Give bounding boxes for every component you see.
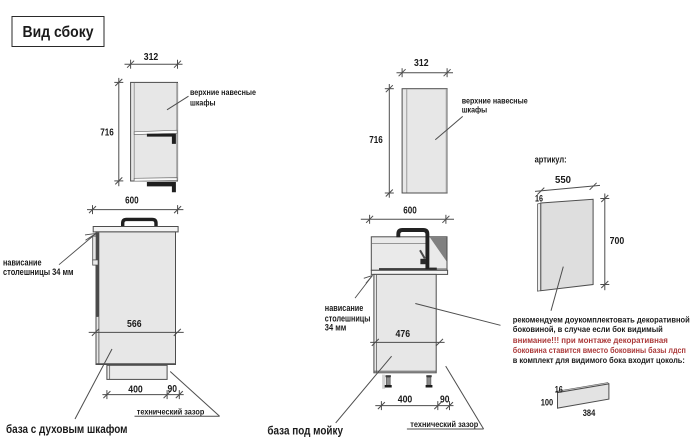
svg-text:16: 16 [555,385,563,395]
svg-text:400: 400 [128,384,143,395]
svg-text:312: 312 [414,58,429,69]
svg-text:боковина ставится вместо боков: боковина ставится вместо боковины базы л… [513,345,686,355]
svg-text:400: 400 [398,395,413,406]
svg-text:шкафы: шкафы [190,98,216,108]
svg-text:90: 90 [168,384,178,395]
svg-text:700: 700 [610,236,625,247]
svg-text:384: 384 [583,408,596,418]
svg-text:шкафы: шкафы [462,104,488,114]
svg-text:база с духовым шкафом: база с духовым шкафом [6,422,128,436]
svg-text:столешницы 34 мм: столешницы 34 мм [3,267,74,277]
svg-text:16: 16 [535,193,543,203]
svg-text:716: 716 [369,135,383,146]
svg-text:база под мойку: база под мойку [267,423,343,437]
svg-text:312: 312 [144,52,159,63]
svg-text:рекомендуем доукомплектовать д: рекомендуем доукомплектовать декоративно… [513,315,690,325]
svg-text:технический зазор: технический зазор [410,419,478,429]
svg-text:в комплект для видимого бока в: в комплект для видимого бока входит цоко… [513,355,685,365]
svg-text:600: 600 [125,196,139,207]
svg-text:34 мм: 34 мм [325,323,347,333]
svg-text:566: 566 [127,319,142,330]
svg-text:716: 716 [100,127,114,138]
svg-text:нависание: нависание [3,257,42,267]
svg-text:технический зазор: технический зазор [137,406,205,416]
svg-text:550: 550 [555,175,571,186]
svg-text:внимание!!! при монтаже декора: внимание!!! при монтаже декоративная [513,335,668,345]
svg-text:боковиной, в случае если бок в: боковиной, в случае если бок видимый [513,324,663,334]
svg-text:верхние навесные: верхние навесные [190,87,256,97]
svg-text:нависание: нависание [325,303,364,313]
svg-text:Вид сбоку: Вид сбоку [23,24,94,41]
svg-text:600: 600 [403,206,417,217]
svg-text:100: 100 [541,398,554,408]
svg-text:артикул:: артикул: [535,154,567,164]
svg-text:476: 476 [396,329,411,340]
svg-text:90: 90 [440,394,450,405]
